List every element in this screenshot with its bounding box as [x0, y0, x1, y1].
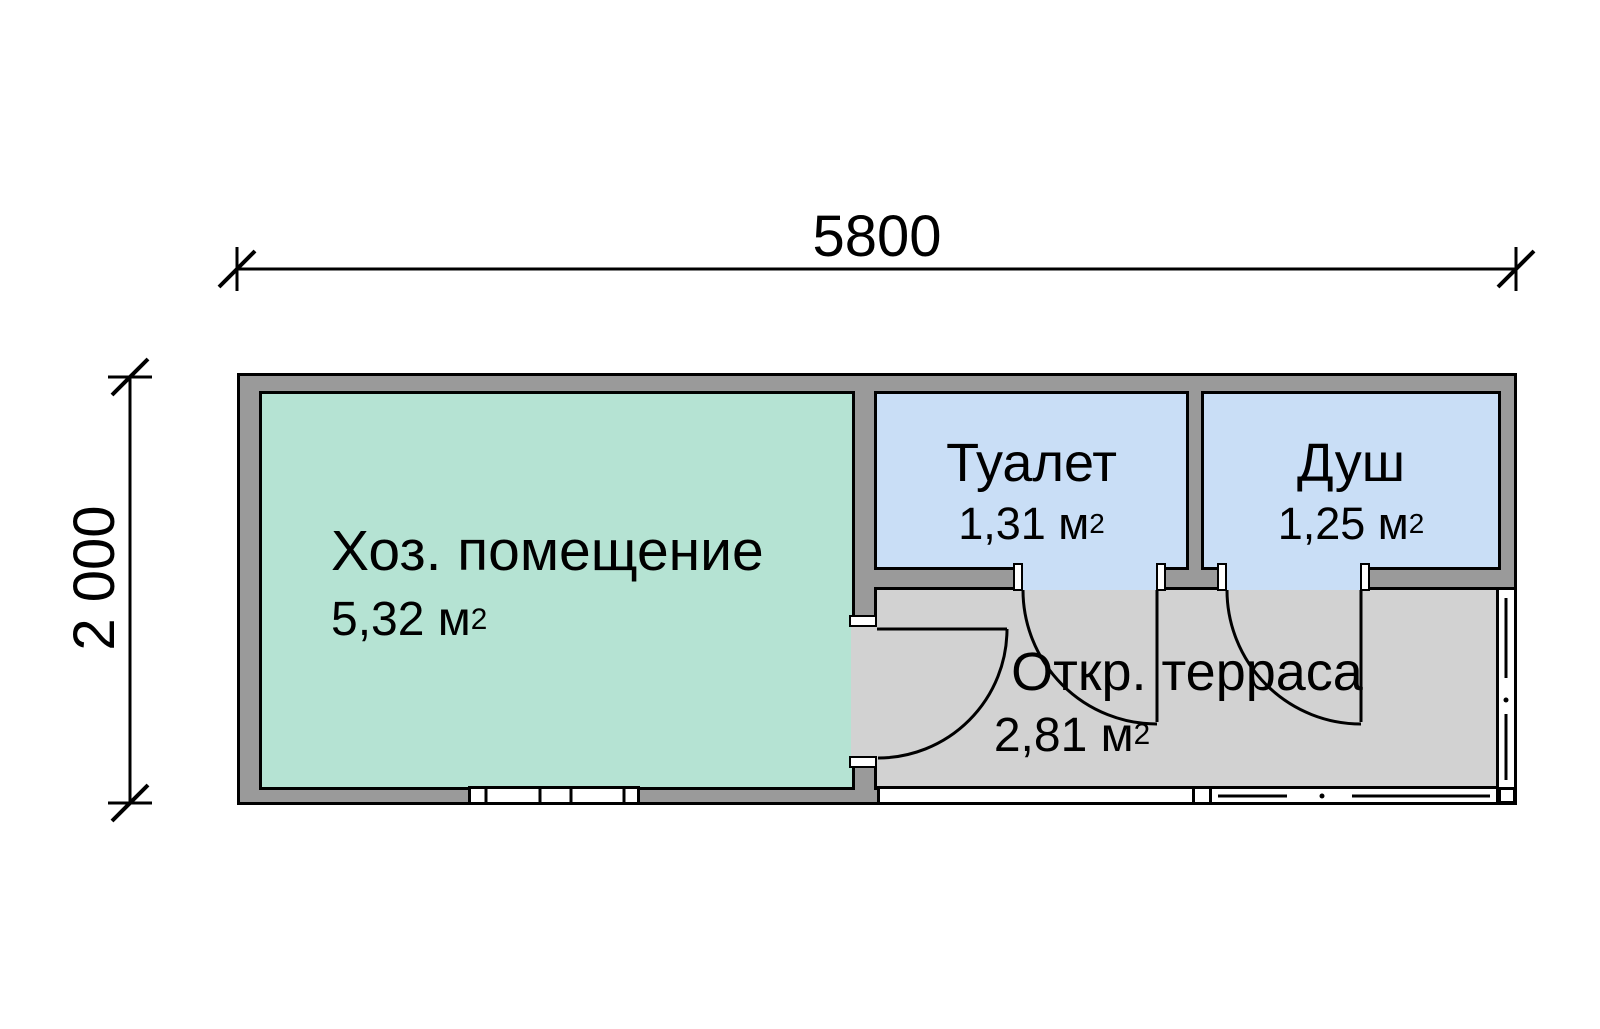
- floor-plan: 5800 2 000 Хоз. помещение 5,32 м2 Туалет…: [0, 0, 1600, 1029]
- doorway-shower: [1227, 564, 1360, 590]
- terrace-room-name: Откр. терраса: [877, 645, 1497, 699]
- door-jamb: [1217, 563, 1227, 591]
- shower-room-area: 1,25 м2: [1201, 501, 1501, 546]
- shower-room-name: Душ: [1201, 436, 1501, 490]
- toilet-room-name: Туалет: [874, 436, 1189, 490]
- toilet-room-label: Туалет 1,31 м2: [874, 436, 1189, 546]
- door-jamb: [1360, 563, 1370, 591]
- door-jamb: [849, 756, 877, 768]
- door-jamb: [1156, 563, 1166, 591]
- railing-corner-post: [1498, 787, 1516, 804]
- door-jamb: [1013, 563, 1023, 591]
- dim-tick-slash: [112, 359, 148, 395]
- terrace-room-area: 2,81 м2: [877, 712, 1267, 760]
- railing-post: [1192, 786, 1212, 805]
- dimension-width-label: 5800: [237, 208, 1517, 266]
- door-jamb: [849, 615, 877, 627]
- utility-room-label: Хоз. помещение 5,32 м2: [331, 523, 764, 644]
- terrace-railing-right: [1496, 587, 1517, 805]
- utility-room-name: Хоз. помещение: [331, 523, 764, 580]
- dimension-height-label: 2 000: [66, 505, 124, 650]
- doorway-toilet: [1023, 564, 1156, 590]
- shower-room-label: Душ 1,25 м2: [1201, 436, 1501, 546]
- window-symbol: [468, 786, 640, 805]
- utility-room-area: 5,32 м2: [331, 596, 764, 644]
- toilet-room-area: 1,31 м2: [874, 501, 1189, 546]
- doorway-utility: [851, 627, 880, 757]
- dim-tick-slash: [112, 785, 148, 821]
